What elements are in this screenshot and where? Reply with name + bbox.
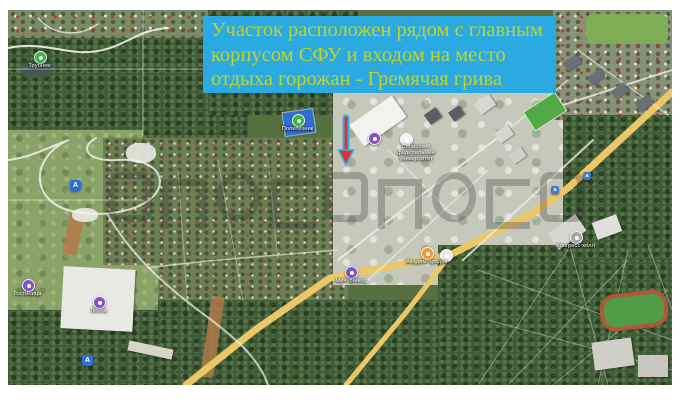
screenshot-page: { "annotation_banner": { "bg_color": "#2…: [0, 0, 680, 412]
banner-line-2: корпусом СФУ и входом на место: [211, 43, 556, 68]
banner-line-3: отдыха горожан - Гремячая грива: [211, 67, 556, 92]
annotation-banner: Участок расположен рядом с главным корпу…: [203, 16, 556, 93]
banner-line-1: Участок расположен рядом с главным: [211, 18, 556, 43]
satellite-map[interactable]: ТрубноеАПолитехникСибирский федеральный …: [8, 10, 672, 385]
